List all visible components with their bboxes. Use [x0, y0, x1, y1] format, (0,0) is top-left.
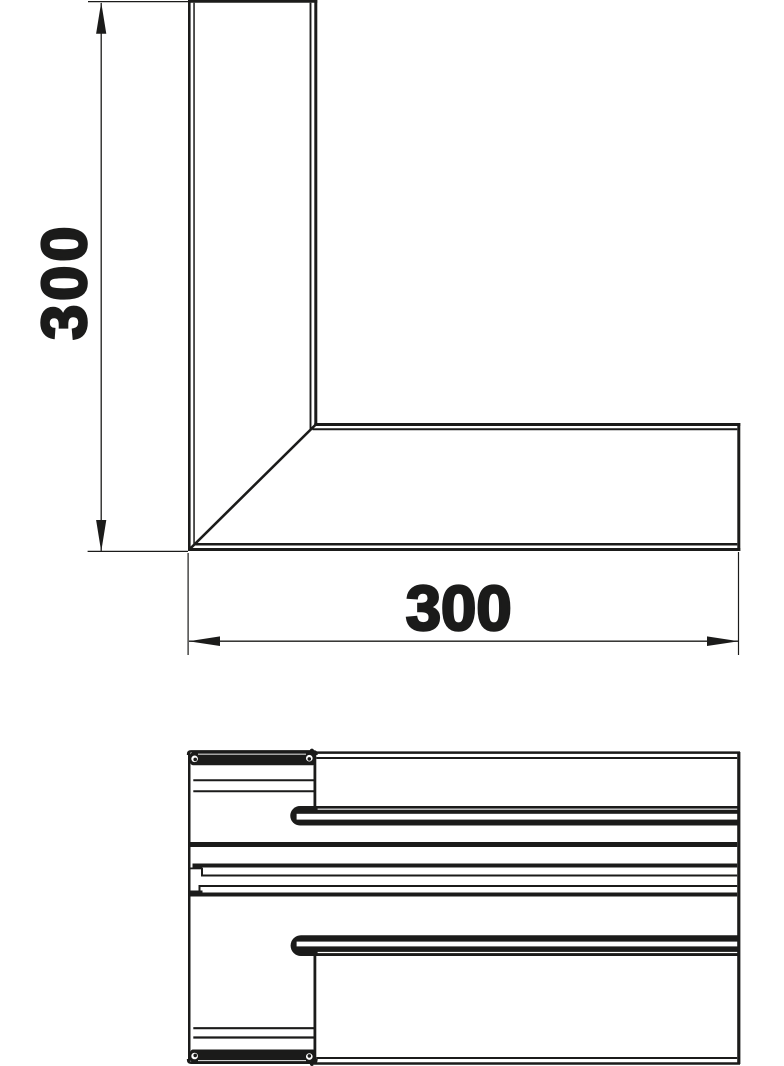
svg-text:300: 300 — [30, 223, 100, 341]
svg-text:300: 300 — [406, 574, 512, 644]
